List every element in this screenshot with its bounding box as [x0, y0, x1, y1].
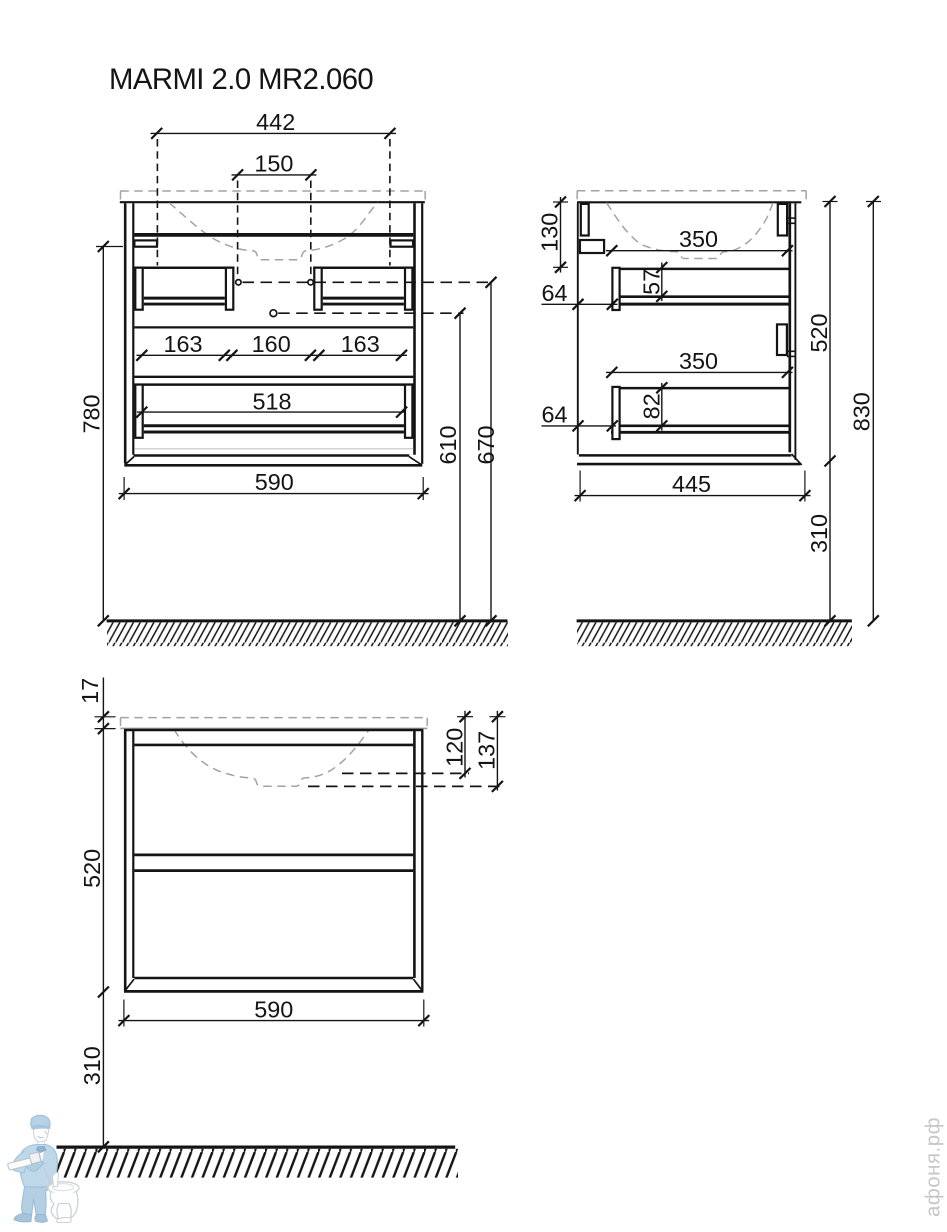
svg-text:163: 163 [163, 331, 202, 357]
svg-text:442: 442 [256, 109, 295, 135]
svg-text:520: 520 [806, 313, 832, 352]
svg-text:150: 150 [254, 150, 293, 176]
svg-text:830: 830 [849, 392, 875, 431]
svg-text:64: 64 [541, 401, 567, 427]
svg-text:160: 160 [252, 331, 291, 357]
svg-text:MARMI 2.0 MR2.060: MARMI 2.0 MR2.060 [109, 63, 373, 96]
svg-text:130: 130 [537, 213, 563, 252]
svg-text:афоня.рф: афоня.рф [922, 1117, 945, 1217]
svg-text:163: 163 [341, 331, 380, 357]
svg-text:350: 350 [679, 226, 718, 252]
svg-text:670: 670 [473, 425, 499, 464]
svg-text:310: 310 [79, 1046, 105, 1085]
svg-text:64: 64 [541, 280, 567, 306]
svg-text:520: 520 [79, 849, 105, 888]
svg-text:137: 137 [474, 731, 500, 770]
svg-text:310: 310 [806, 514, 832, 553]
svg-text:590: 590 [255, 469, 294, 495]
svg-text:590: 590 [254, 996, 293, 1022]
svg-text:445: 445 [672, 471, 711, 497]
svg-text:610: 610 [435, 425, 461, 464]
svg-text:780: 780 [79, 394, 105, 433]
svg-text:82: 82 [638, 393, 664, 419]
svg-text:120: 120 [441, 728, 467, 767]
svg-text:57: 57 [638, 269, 664, 295]
svg-text:518: 518 [252, 388, 291, 414]
svg-text:17: 17 [77, 678, 103, 704]
svg-text:350: 350 [679, 348, 718, 374]
